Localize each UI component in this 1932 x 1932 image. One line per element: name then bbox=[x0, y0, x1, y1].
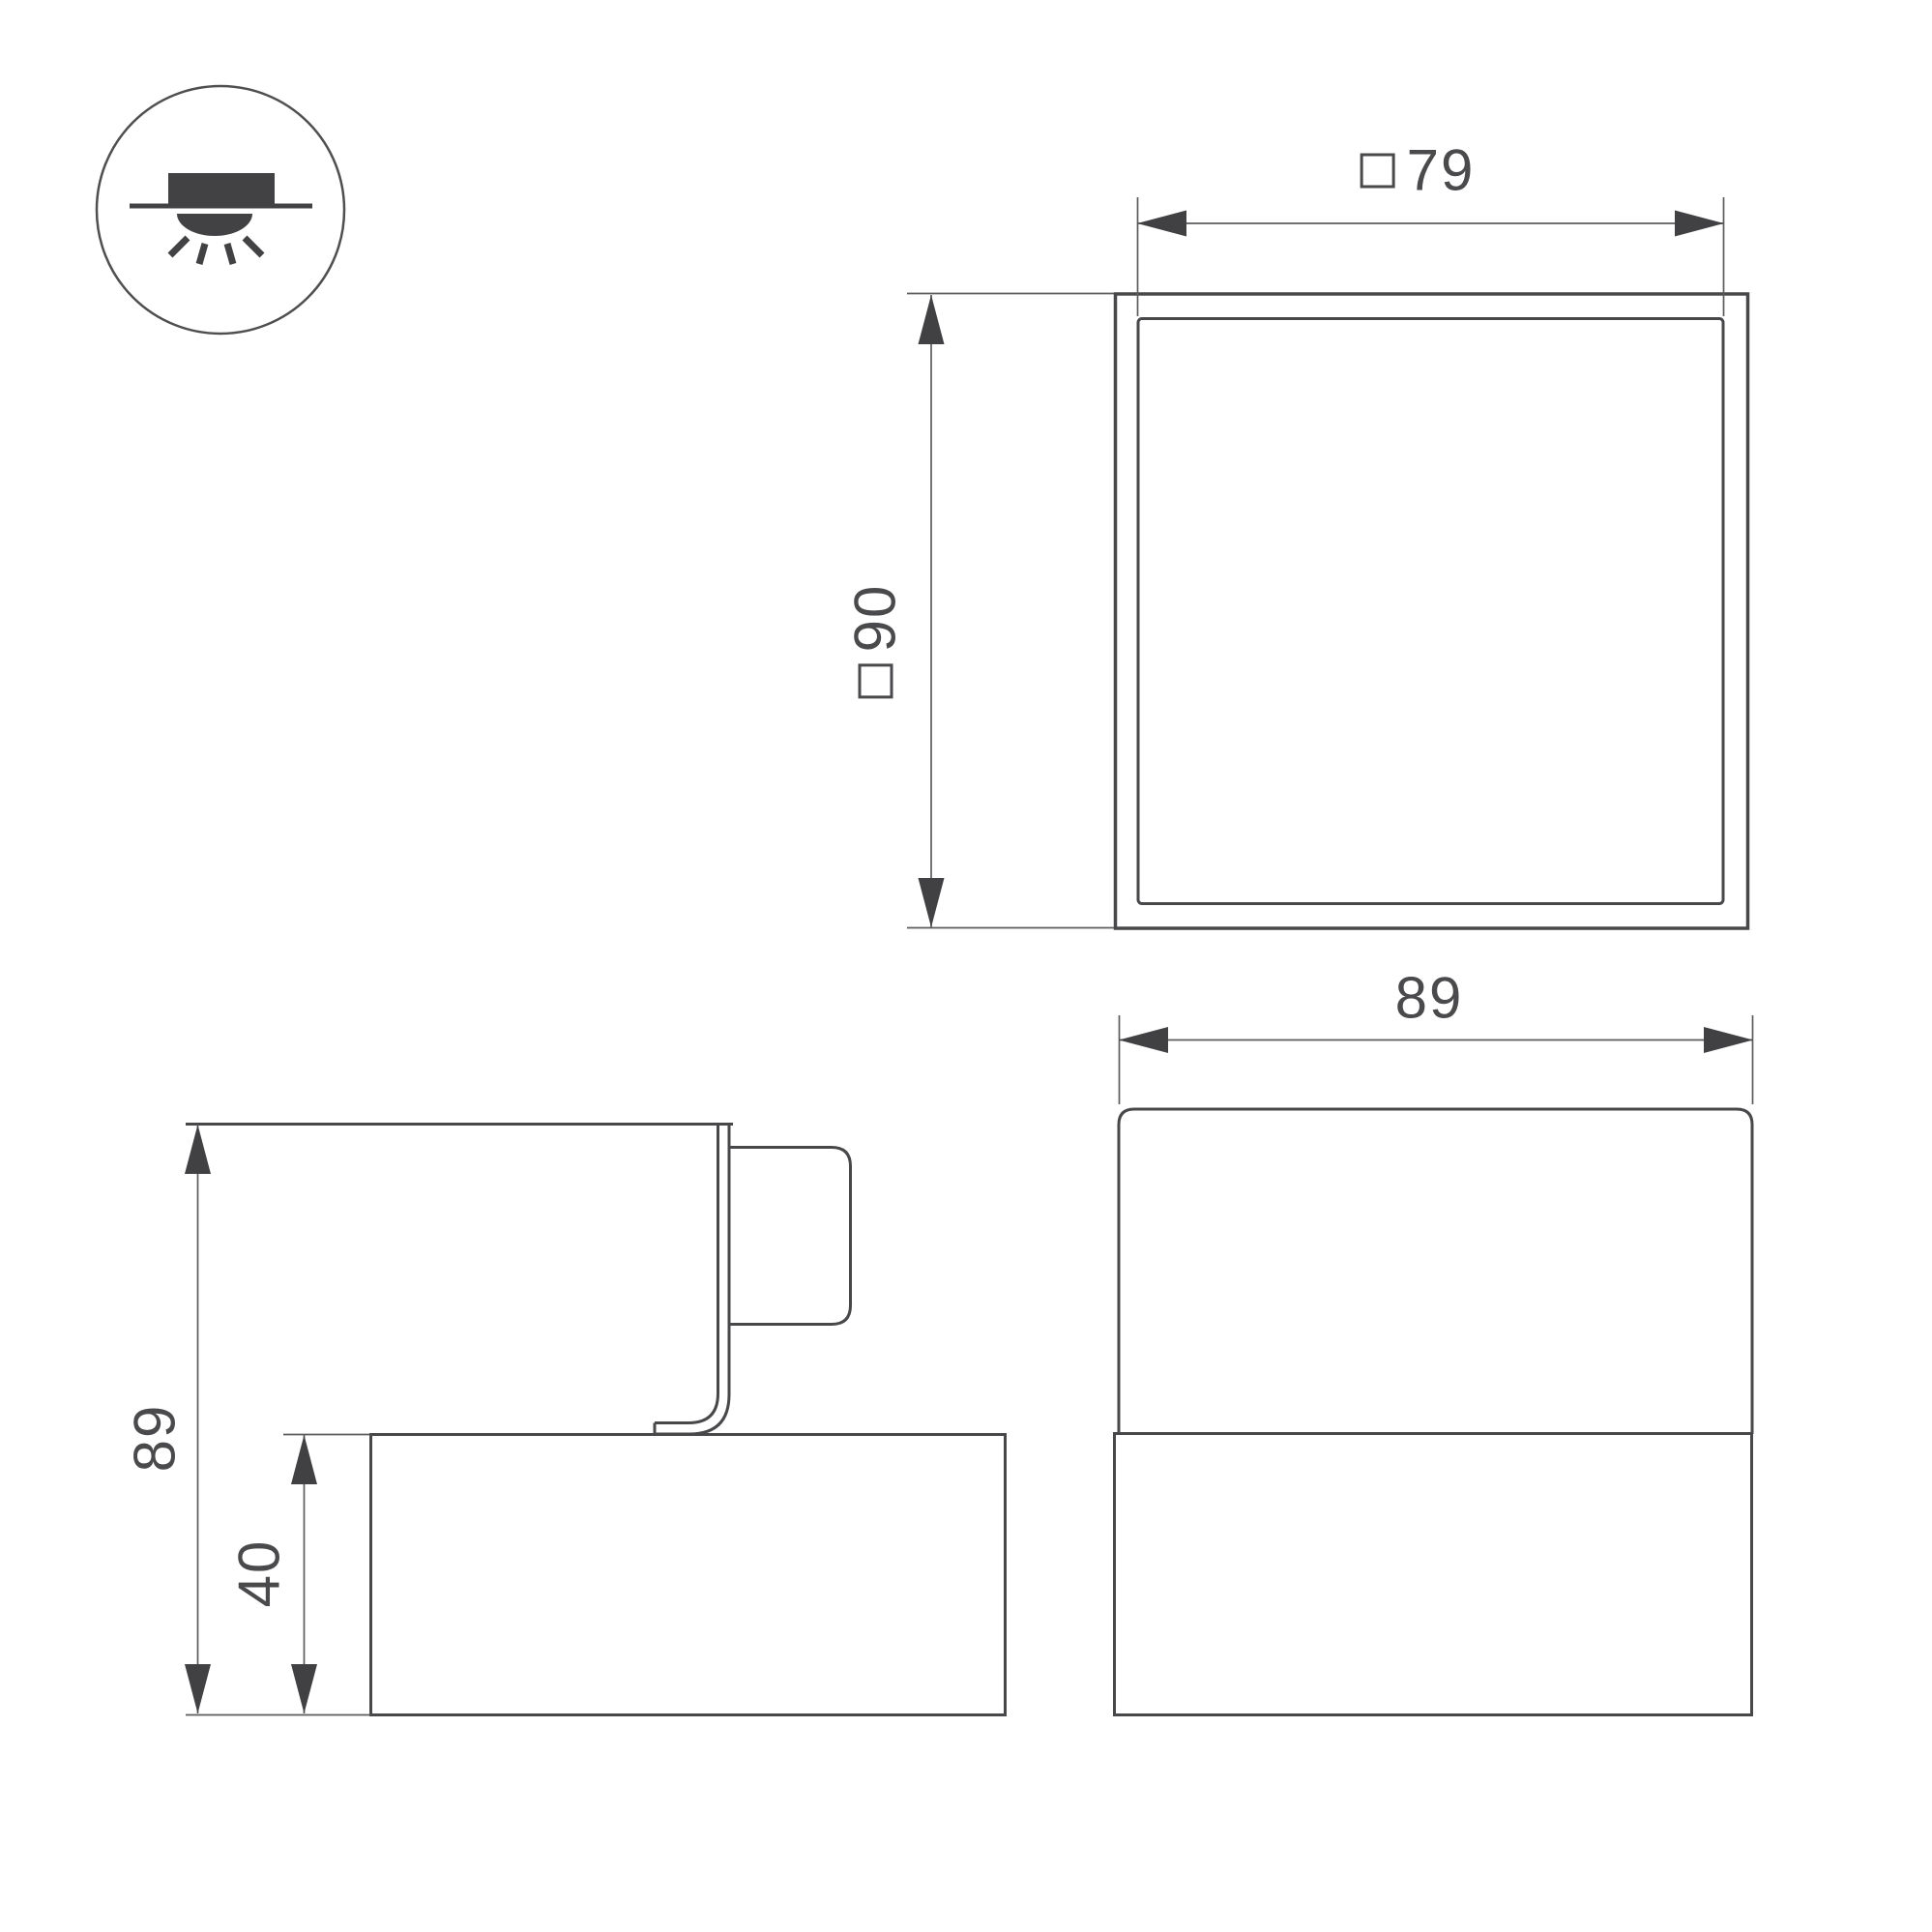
dim-label-side-total-height: 89 bbox=[122, 1404, 189, 1473]
front-view-base bbox=[1115, 1434, 1752, 1715]
side-view bbox=[185, 1125, 1006, 1715]
drawing-linework bbox=[0, 0, 1932, 1932]
square-symbol bbox=[858, 663, 893, 698]
dim-label-top-height: 90 bbox=[842, 584, 909, 699]
recessed-ceiling-light-icon bbox=[97, 86, 344, 334]
dim-value: 40 bbox=[226, 1539, 293, 1608]
dimension-side-base-height bbox=[283, 1435, 370, 1714]
side-view-bracket bbox=[655, 1125, 729, 1434]
dim-value: 90 bbox=[842, 584, 909, 653]
dimension-drawing: 79 90 89 40 89 bbox=[0, 0, 1932, 1932]
dim-value: 89 bbox=[122, 1404, 189, 1473]
top-view-outer-square bbox=[1116, 294, 1748, 928]
dimension-side-total-height bbox=[185, 1125, 370, 1715]
dim-label-top-width: 79 bbox=[1361, 137, 1476, 204]
dim-value: 89 bbox=[1395, 965, 1464, 1032]
dimension-top-height bbox=[907, 294, 1114, 928]
square-symbol bbox=[1361, 153, 1395, 188]
dim-label-side-base-height: 40 bbox=[226, 1539, 293, 1608]
side-view-base bbox=[371, 1435, 1006, 1715]
side-view-driver-box bbox=[729, 1148, 851, 1325]
front-view bbox=[1115, 1015, 1754, 1715]
dim-value: 79 bbox=[1407, 137, 1476, 204]
front-view-head bbox=[1119, 1109, 1752, 1434]
top-view bbox=[907, 197, 1748, 928]
dim-label-front-width: 89 bbox=[1395, 965, 1464, 1032]
icon-housing bbox=[168, 173, 275, 204]
